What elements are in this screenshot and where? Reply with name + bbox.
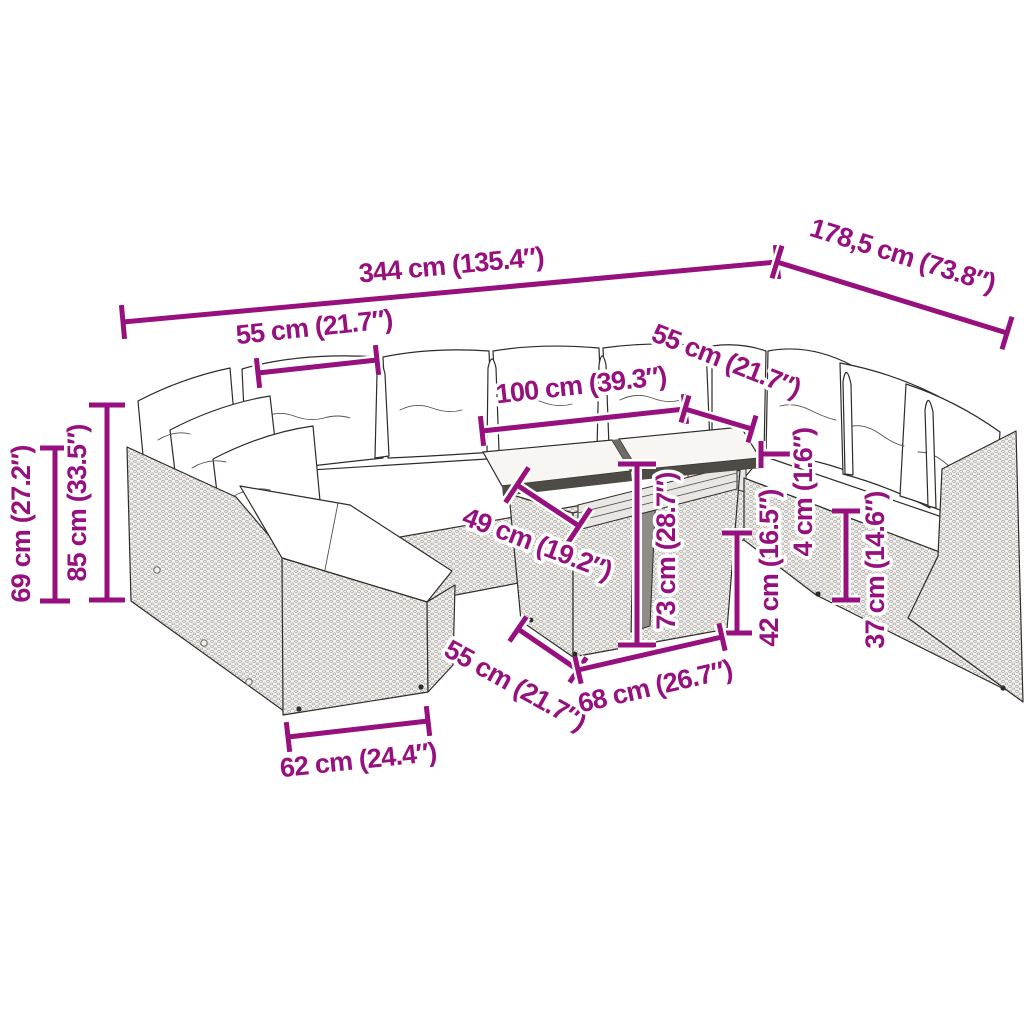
dimension-label-seat-depth-front: 62 cm (24.4″) <box>278 737 437 783</box>
diagram-canvas: 344 cm (135.4″)178,5 cm (73.8″)55 cm (21… <box>0 0 1024 1024</box>
dimension-label-arm-height: 69 cm (27.2″) <box>6 445 36 602</box>
dimension-label-base-height-right: 37 cm (14.6″) <box>860 491 890 648</box>
dimension-total-height <box>89 405 125 600</box>
dimension-label-cushion-thickness: 4 cm (1.6″) <box>788 428 818 557</box>
dimension-label-seat-height-right: 42 cm (16.5″) <box>754 489 784 646</box>
dimension-label-total-height: 85 cm (33.5″) <box>62 424 92 581</box>
dimension-label-overall-depth: 178,5 cm (73.8″) <box>806 212 998 298</box>
diagram-page: 344 cm (135.4″)178,5 cm (73.8″)55 cm (21… <box>0 0 1024 1024</box>
dimension-label-table-height: 73 cm (28.7″) <box>651 472 681 629</box>
cushion-seam-spike <box>843 372 853 475</box>
